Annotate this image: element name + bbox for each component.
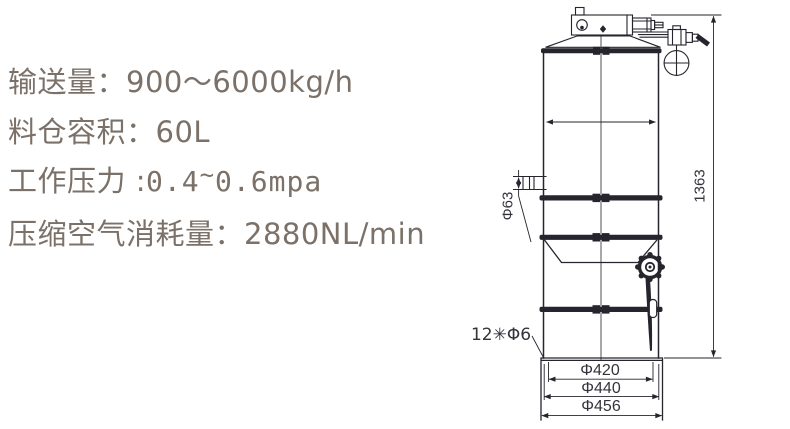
- valve-handwheel: [635, 252, 665, 282]
- clamp-band: [541, 48, 662, 53]
- technical-drawing: [0, 0, 790, 429]
- dim-label-bolt-pattern: 12✳Φ6: [471, 325, 531, 345]
- clamp-band: [540, 235, 663, 240]
- gauge-circle: [664, 51, 689, 76]
- vacuum-generator: [572, 8, 664, 36]
- clamp-band: [540, 307, 663, 312]
- dimension-extension-lines: [513, 15, 722, 400]
- inlet-pipe: [523, 177, 546, 190]
- dim-label-flange-420: Φ420: [580, 362, 619, 380]
- dim-label-flange-456: Φ456: [581, 398, 620, 416]
- dimension-lines: [519, 16, 714, 415]
- vacuum-feeder-spec-sheet: 输送量：900～6000kg/h 料仓容积：60L 工作压力 :0.4~0.6m…: [0, 0, 790, 429]
- valve-lever: [646, 278, 657, 351]
- dim-label-overall-height: 1363: [692, 169, 709, 202]
- clamp-band: [540, 195, 663, 200]
- dim-label-flange-440: Φ440: [581, 380, 620, 398]
- dim-label-inlet-diameter: Φ63: [500, 192, 517, 221]
